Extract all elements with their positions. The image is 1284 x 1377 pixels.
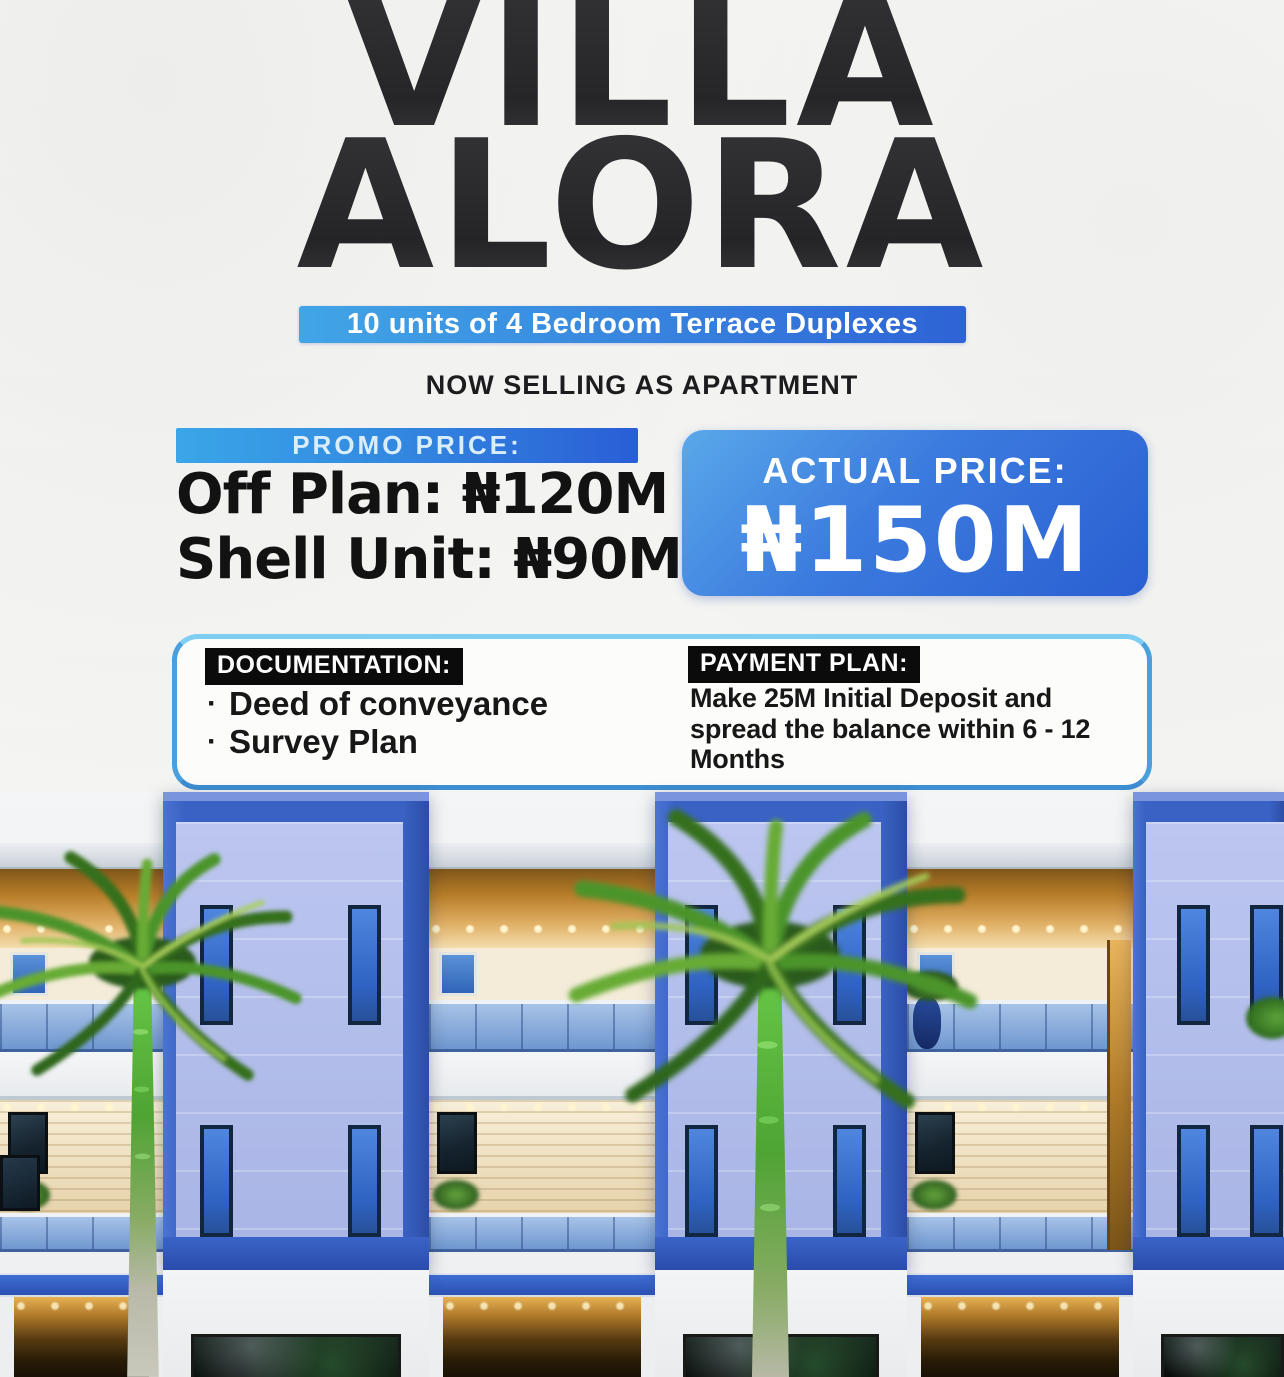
bullet-dot: · <box>207 725 217 758</box>
documentation-item: ·Deed of conveyance <box>207 687 548 720</box>
documentation-label: DOCUMENTATION: <box>205 648 463 685</box>
documentation-item: ·Survey Plan <box>207 725 418 758</box>
documentation-item-text: Survey Plan <box>229 723 418 760</box>
subtitle-banner: 10 units of 4 Bedroom Terrace Duplexes <box>299 306 966 343</box>
tower-ground-wall <box>1133 1270 1284 1377</box>
off-plan-price: Off Plan: ₦120M <box>176 467 668 523</box>
actual-price-label: ACTUAL PRICE: <box>682 450 1148 492</box>
tower-roof-edge <box>163 792 429 801</box>
balcony-plant <box>433 1180 479 1210</box>
actual-price-value: ₦150M <box>682 496 1148 586</box>
title-line-2: ALORA <box>0 117 1284 295</box>
lit-doorway <box>1107 940 1131 1250</box>
ground-window <box>1161 1334 1284 1377</box>
property-flyer: VILLA ALORA 10 units of 4 Bedroom Terrac… <box>0 0 1284 1377</box>
documentation-item-text: Deed of conveyance <box>229 685 548 722</box>
payment-plan-label: PAYMENT PLAN: <box>688 646 920 683</box>
promo-price-label: PROMO PRICE: <box>176 428 638 463</box>
building-illustration <box>0 792 1284 1377</box>
details-card: DOCUMENTATION: ·Deed of conveyance ·Surv… <box>172 634 1152 790</box>
upper-window <box>439 952 477 996</box>
tower-base-band <box>1133 1237 1284 1270</box>
shell-unit-price: Shell Unit: ₦90M <box>176 532 682 588</box>
tower-window <box>1177 1125 1210 1237</box>
tower-window <box>348 905 381 1025</box>
palm-tree <box>545 795 995 1377</box>
availability-note: NOW SELLING AS APARTMENT <box>0 370 1284 401</box>
payment-plan-text: Make 25M Initial Deposit and spread the … <box>690 683 1130 775</box>
tower-window <box>1177 905 1210 1025</box>
interior-window <box>437 1112 477 1174</box>
tower-window <box>348 1125 381 1237</box>
actual-price-card: ACTUAL PRICE: ₦150M <box>682 430 1148 596</box>
tower-window <box>1250 1125 1283 1237</box>
bullet-dot: · <box>207 687 217 720</box>
palm-tree <box>0 840 315 1377</box>
tower-roof-edge <box>1133 792 1284 801</box>
